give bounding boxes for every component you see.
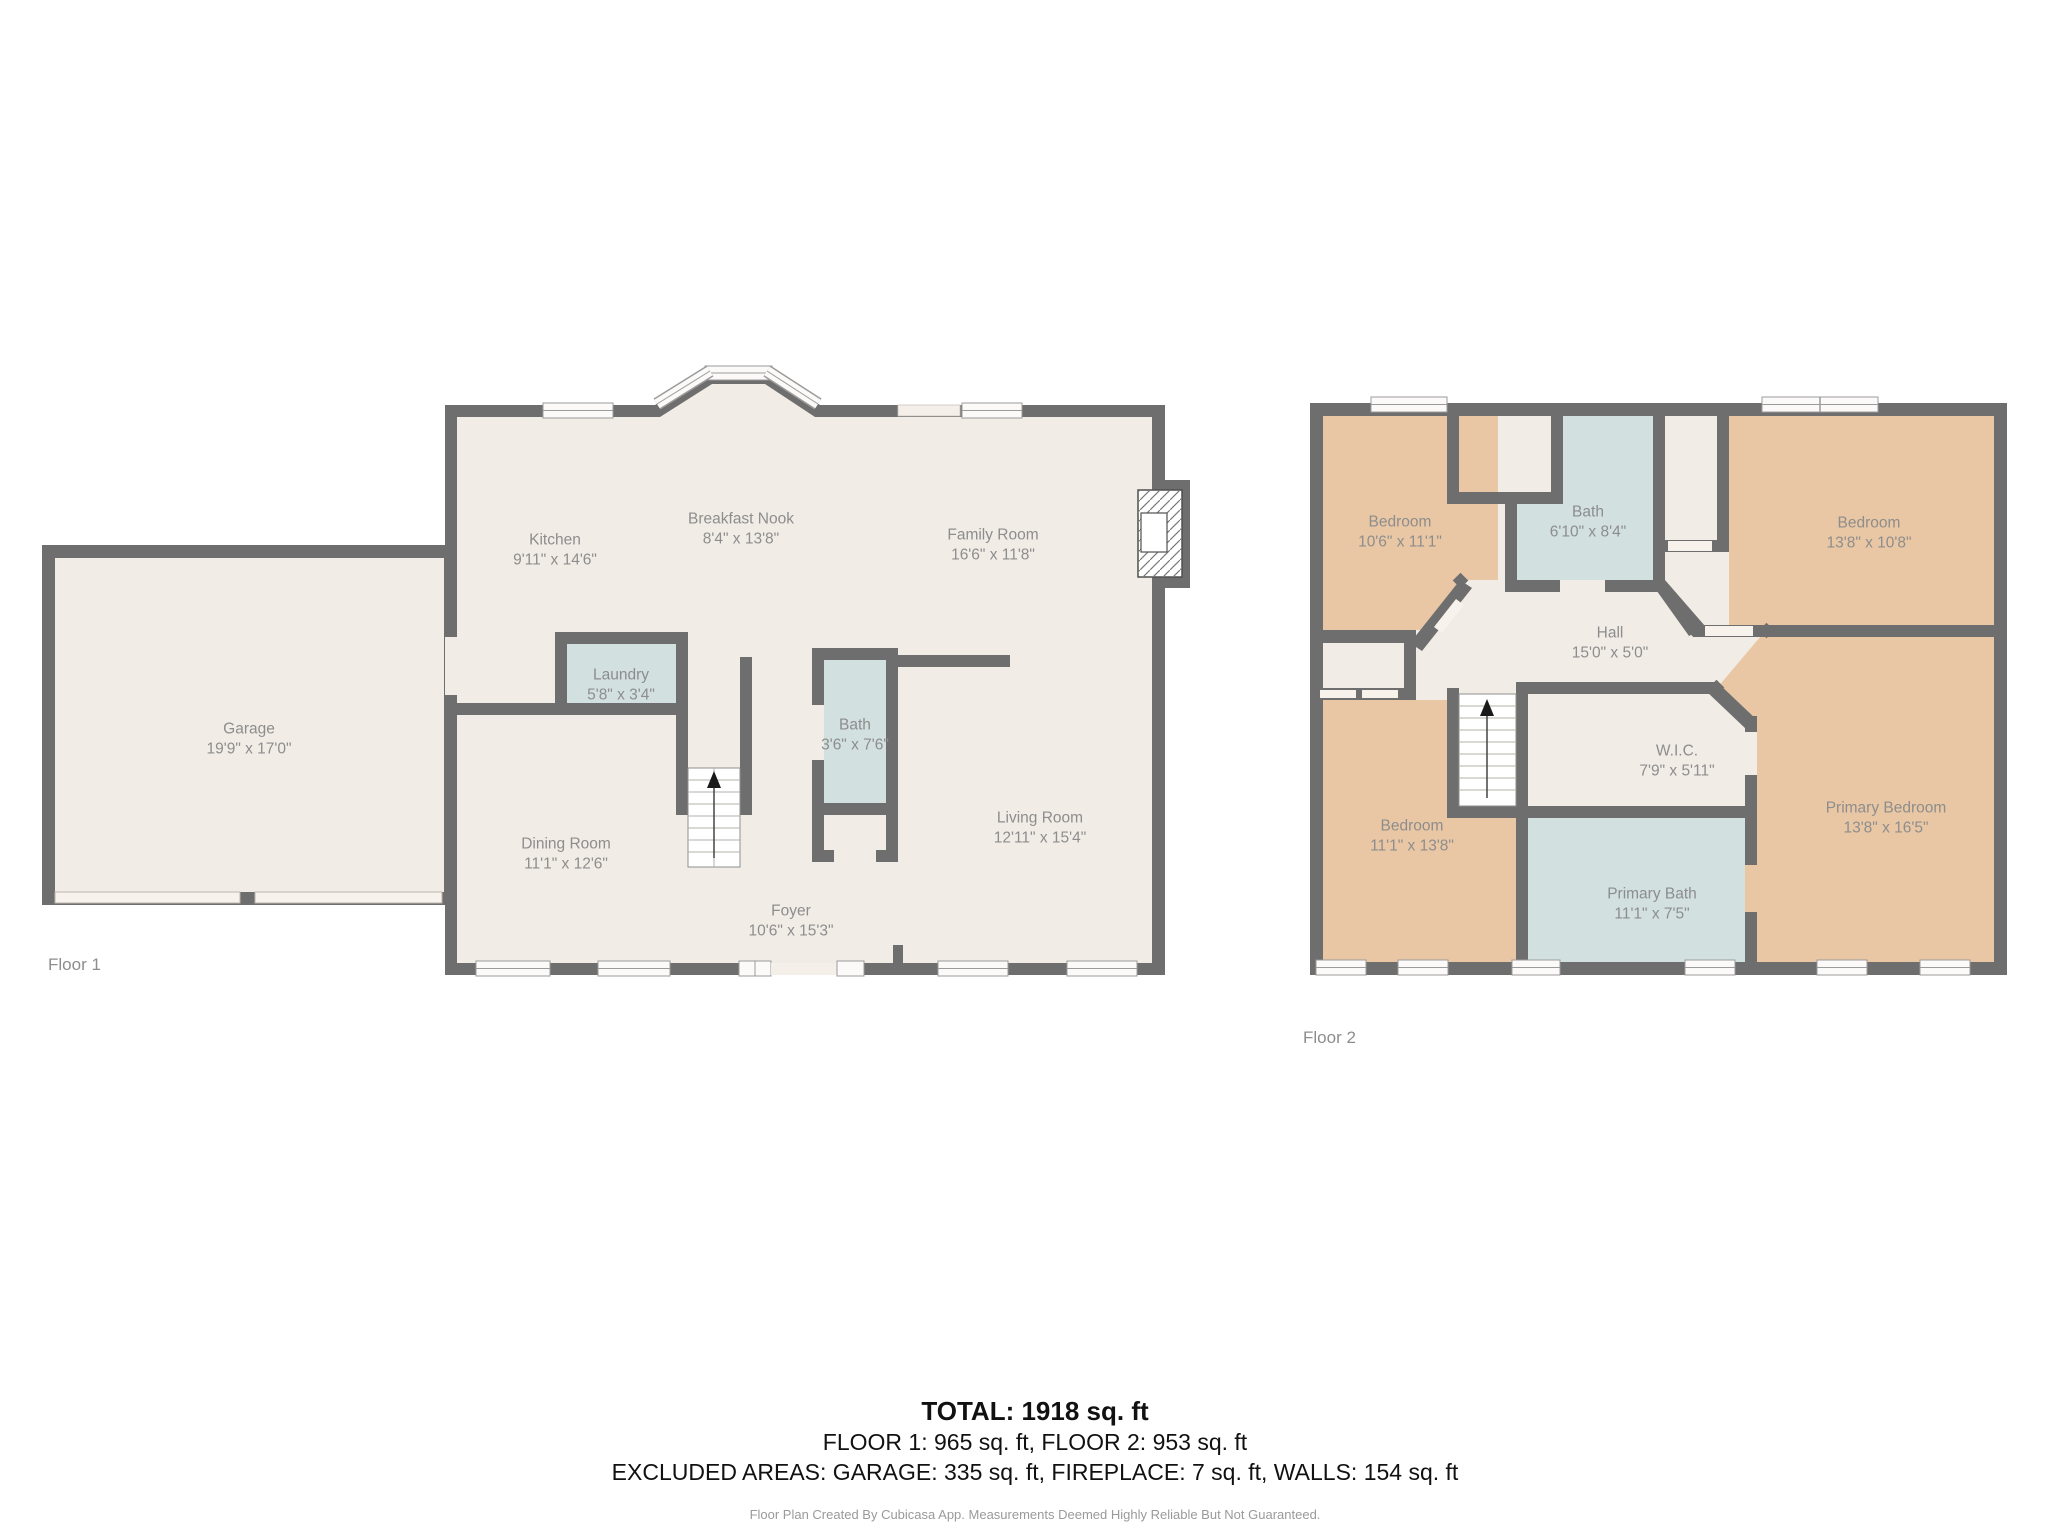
- closet-door-opening: [1362, 690, 1398, 698]
- room-label-wic: W.I.C. 7'9" x 5'11": [1639, 742, 1714, 781]
- stairs-icon: [1459, 694, 1516, 806]
- entry-door-opening: [771, 963, 837, 975]
- fireplace-icon: [1138, 490, 1182, 577]
- garage-door: [255, 892, 442, 903]
- linen-closet: [1665, 416, 1717, 520]
- room-label-primary-bedroom: Primary Bedroom 13'8" x 16'5": [1826, 799, 1947, 838]
- stairs-icon: [688, 768, 740, 867]
- door-opening: [1705, 626, 1753, 636]
- excluded-areas-text: EXCLUDED AREAS: GARAGE: 335 sq. ft, FIRE…: [0, 1459, 2048, 1486]
- garage-door: [55, 892, 240, 903]
- room-label-bedroom-sw: Bedroom 11'1" x 13'8": [1370, 817, 1454, 856]
- room-label-laundry: Laundry 5'8" x 3'4": [587, 666, 655, 705]
- floor-areas-text: FLOOR 1: 965 sq. ft, FLOOR 2: 953 sq. ft: [0, 1429, 2048, 1456]
- room-label-family-room: Family Room 16'6" x 11'8": [947, 526, 1038, 565]
- room-label-kitchen: Kitchen 9'11" x 14'6": [513, 531, 597, 570]
- room-label-living-room: Living Room 12'11" x 15'4": [994, 809, 1086, 848]
- room-label-bath2: Bath 6'10" x 8'4": [1550, 503, 1626, 542]
- floor2-caption: Floor 2: [1303, 1028, 1356, 1048]
- room-label-garage: Garage 19'9" x 17'0": [206, 720, 291, 759]
- room-label-breakfast-nook: Breakfast Nook 8'4" x 13'8": [688, 510, 794, 549]
- total-area-text: TOTAL: 1918 sq. ft: [0, 1396, 2048, 1427]
- closet-door-opening: [1320, 690, 1356, 698]
- room-label-bedroom-ne: Bedroom 13'8" x 10'8": [1826, 514, 1911, 553]
- room-label-hall: Hall 15'0" x 5'0": [1572, 624, 1648, 663]
- floor1-caption: Floor 1: [48, 955, 101, 975]
- room-label-dining-room: Dining Room 11'1" x 12'6": [521, 835, 611, 874]
- wic-area: [1516, 692, 1757, 810]
- door-opening: [445, 637, 457, 695]
- room-label-bath1: Bath 3'6" x 7'6": [821, 716, 889, 755]
- disclaimer-text: Floor Plan Created By Cubicasa App. Meas…: [0, 1507, 2048, 1522]
- room-label-bedroom-nw: Bedroom 10'6" x 11'1": [1358, 513, 1442, 552]
- room-label-foyer: Foyer 10'6" x 15'3": [748, 902, 833, 941]
- sliding-door-opening: [898, 405, 960, 416]
- room-label-primary-bath: Primary Bath 11'1" x 7'5": [1607, 885, 1697, 924]
- door-opening: [1668, 541, 1712, 551]
- floorplan-canvas: [0, 0, 2048, 1536]
